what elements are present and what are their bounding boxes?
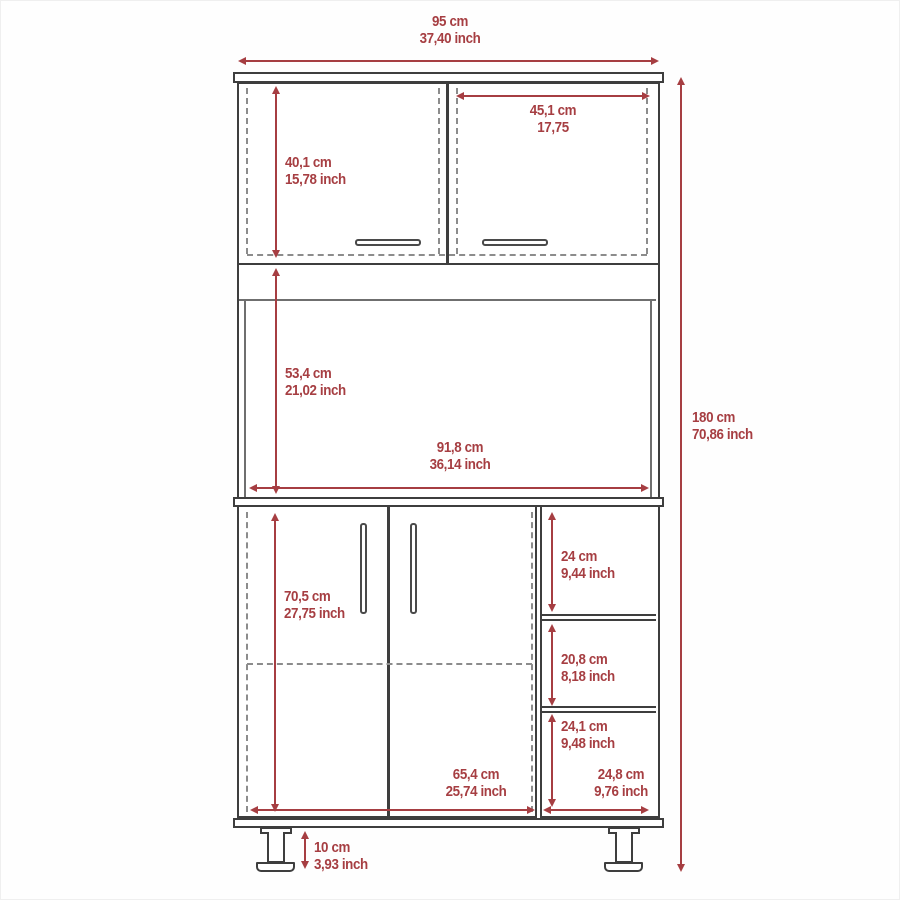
dim-upper-door-width-arrow-right (642, 92, 650, 100)
dim-inch-text: 8,18 inch (561, 669, 615, 686)
dim-overall-height-label: 180 cm 70,86 inch (692, 410, 753, 443)
dim-cm-text: 91,8 cm (430, 440, 491, 457)
dim-overall-width-label: 95 cm 37,40 inch (420, 14, 481, 47)
dim-cm-text: 20,8 cm (561, 652, 615, 669)
upper-right-door-dashed-left (456, 88, 458, 254)
dim-overall-width-arrow-left (238, 57, 246, 65)
side-shelf-divider-top (542, 614, 656, 621)
dim-shelf-top-arrow-bottom (548, 604, 556, 612)
dim-inch-text: 9,48 inch (561, 736, 615, 753)
left-leg-foot (256, 862, 295, 872)
dim-cm-text: 24,1 cm (561, 719, 615, 736)
upper-left-door-handle (355, 239, 421, 246)
lower-doors-hidden-shelf-dashed (247, 663, 532, 665)
cabinet-dimension-diagram: 95 cm 37,40 inch 180 cm 70,86 inch 40,1 … (0, 0, 900, 900)
dim-cm-text: 65,4 cm (446, 767, 507, 784)
dim-leg-height-arrow-top (301, 831, 309, 839)
dim-shelf-width-label: 24,8 cm 9,76 inch (594, 767, 648, 800)
dim-overall-height-line (680, 85, 682, 864)
dim-leg-height-line (304, 839, 306, 861)
dim-inch-text: 27,75 inch (284, 606, 345, 623)
dim-upper-door-width-line (464, 95, 642, 97)
dim-inch-text: 17,75 (530, 120, 576, 137)
open-section-left-inner-panel (244, 301, 246, 497)
dim-shelf-width-line (551, 809, 641, 811)
dim-cm-text: 70,5 cm (284, 589, 345, 606)
dim-lower-door-width-label: 65,4 cm 25,74 inch (446, 767, 507, 800)
open-section-right-inner-panel (650, 301, 652, 497)
dim-open-height-label: 53,4 cm 21,02 inch (285, 366, 346, 399)
dim-overall-width-line (246, 60, 652, 62)
dim-shelf-top-label: 24 cm 9,44 inch (561, 549, 615, 582)
dim-inch-text: 70,86 inch (692, 427, 753, 444)
dim-lower-door-height-line (274, 521, 276, 804)
upper-door-divider (446, 83, 449, 264)
dim-shelf-middle-arrow-top (548, 624, 556, 632)
right-leg-foot (604, 862, 643, 872)
dim-lower-door-width-line (258, 809, 527, 811)
lower-right-door-dashed-right (531, 512, 533, 812)
dim-shelf-width-arrow-left (543, 806, 551, 814)
dim-open-height-arrow-top (272, 268, 280, 276)
dim-inch-text: 9,44 inch (561, 566, 615, 583)
dim-cm-text: 180 cm (692, 410, 753, 427)
dim-shelf-middle-arrow-bottom (548, 698, 556, 706)
dim-overall-height-arrow-top (677, 77, 685, 85)
side-shelf-partition (535, 507, 542, 818)
dim-overall-width-arrow-right (651, 57, 659, 65)
side-shelf-divider-bottom (542, 706, 656, 713)
dim-leg-height-label: 10 cm 3,93 inch (314, 840, 368, 873)
dim-open-width-label: 91,8 cm 36,14 inch (430, 440, 491, 473)
dim-lower-door-width-arrow-left (250, 806, 258, 814)
dim-inch-text: 15,78 inch (285, 172, 346, 189)
dim-upper-door-height-arrow-top (272, 86, 280, 94)
dim-shelf-bottom-label: 24,1 cm 9,48 inch (561, 719, 615, 752)
dim-upper-door-height-label: 40,1 cm 15,78 inch (285, 155, 346, 188)
upper-left-door-dashed-left (246, 88, 248, 254)
dim-inch-text: 36,14 inch (430, 457, 491, 474)
lower-left-door-dashed-left (246, 512, 248, 812)
dim-cm-text: 10 cm (314, 840, 368, 857)
lower-left-door-handle (360, 523, 367, 614)
dim-lower-door-height-arrow-top (271, 513, 279, 521)
dim-shelf-width-arrow-right (641, 806, 649, 814)
dim-open-height-line (275, 276, 277, 486)
dim-shelf-top-arrow-top (548, 512, 556, 520)
dim-shelf-middle-line (551, 632, 553, 698)
upper-right-door-dashed-right (646, 88, 648, 254)
dim-upper-door-width-label: 45,1 cm 17,75 (530, 103, 576, 136)
dim-upper-door-width-arrow-left (456, 92, 464, 100)
dim-upper-door-height-line (275, 94, 277, 250)
upper-doors-dashed-bottom (247, 254, 647, 256)
dim-open-width-arrow-right (641, 484, 649, 492)
dim-shelf-top-line (551, 520, 553, 604)
right-leg-stem (615, 832, 633, 863)
dim-inch-text: 25,74 inch (446, 784, 507, 801)
cabinet-top-panel (233, 72, 664, 83)
dim-cm-text: 95 cm (420, 14, 481, 31)
dim-lower-door-height-label: 70,5 cm 27,75 inch (284, 589, 345, 622)
dim-leg-height-arrow-bottom (301, 861, 309, 869)
dim-cm-text: 24 cm (561, 549, 615, 566)
left-leg-stem (267, 832, 285, 863)
dim-shelf-middle-label: 20,8 cm 8,18 inch (561, 652, 615, 685)
dim-cm-text: 40,1 cm (285, 155, 346, 172)
lower-right-door-handle (410, 523, 417, 614)
dim-shelf-bottom-arrow-top (548, 714, 556, 722)
upper-section-bottom-line (237, 263, 658, 265)
dim-inch-text: 21,02 inch (285, 383, 346, 400)
dim-cm-text: 53,4 cm (285, 366, 346, 383)
open-section-top-line (239, 299, 656, 301)
upper-right-door-handle (482, 239, 548, 246)
dim-lower-door-width-arrow-right (527, 806, 535, 814)
dim-upper-door-height-arrow-bottom (272, 250, 280, 258)
dim-inch-text: 37,40 inch (420, 31, 481, 48)
dim-cm-text: 24,8 cm (594, 767, 648, 784)
dim-open-width-line (257, 487, 641, 489)
dim-shelf-bottom-line (551, 722, 553, 799)
dim-open-width-arrow-left (249, 484, 257, 492)
cabinet-bottom-panel (233, 818, 664, 828)
upper-left-door-dashed-right (438, 88, 440, 254)
dim-inch-text: 9,76 inch (594, 784, 648, 801)
dim-cm-text: 45,1 cm (530, 103, 576, 120)
dim-overall-height-arrow-bottom (677, 864, 685, 872)
counter-panel (233, 497, 664, 507)
dim-inch-text: 3,93 inch (314, 857, 368, 874)
